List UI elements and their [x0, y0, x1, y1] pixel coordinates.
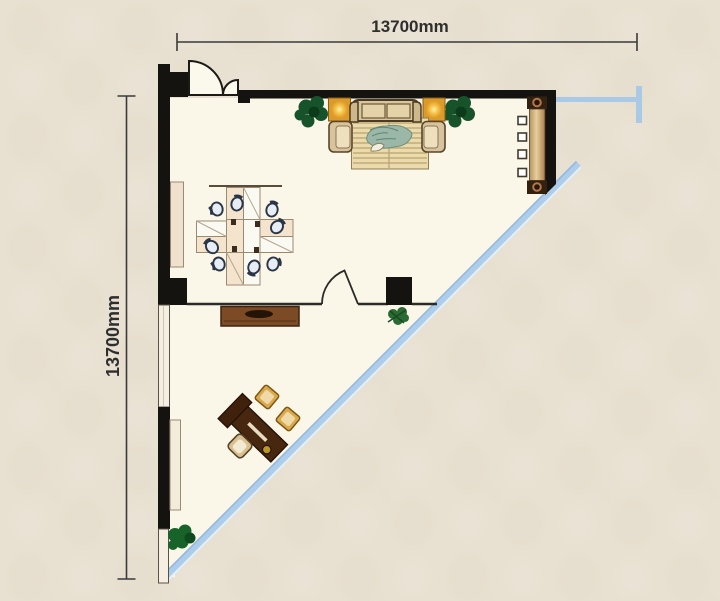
svg-text:13700mm: 13700mm: [103, 295, 123, 377]
svg-text:13700mm: 13700mm: [371, 17, 449, 36]
